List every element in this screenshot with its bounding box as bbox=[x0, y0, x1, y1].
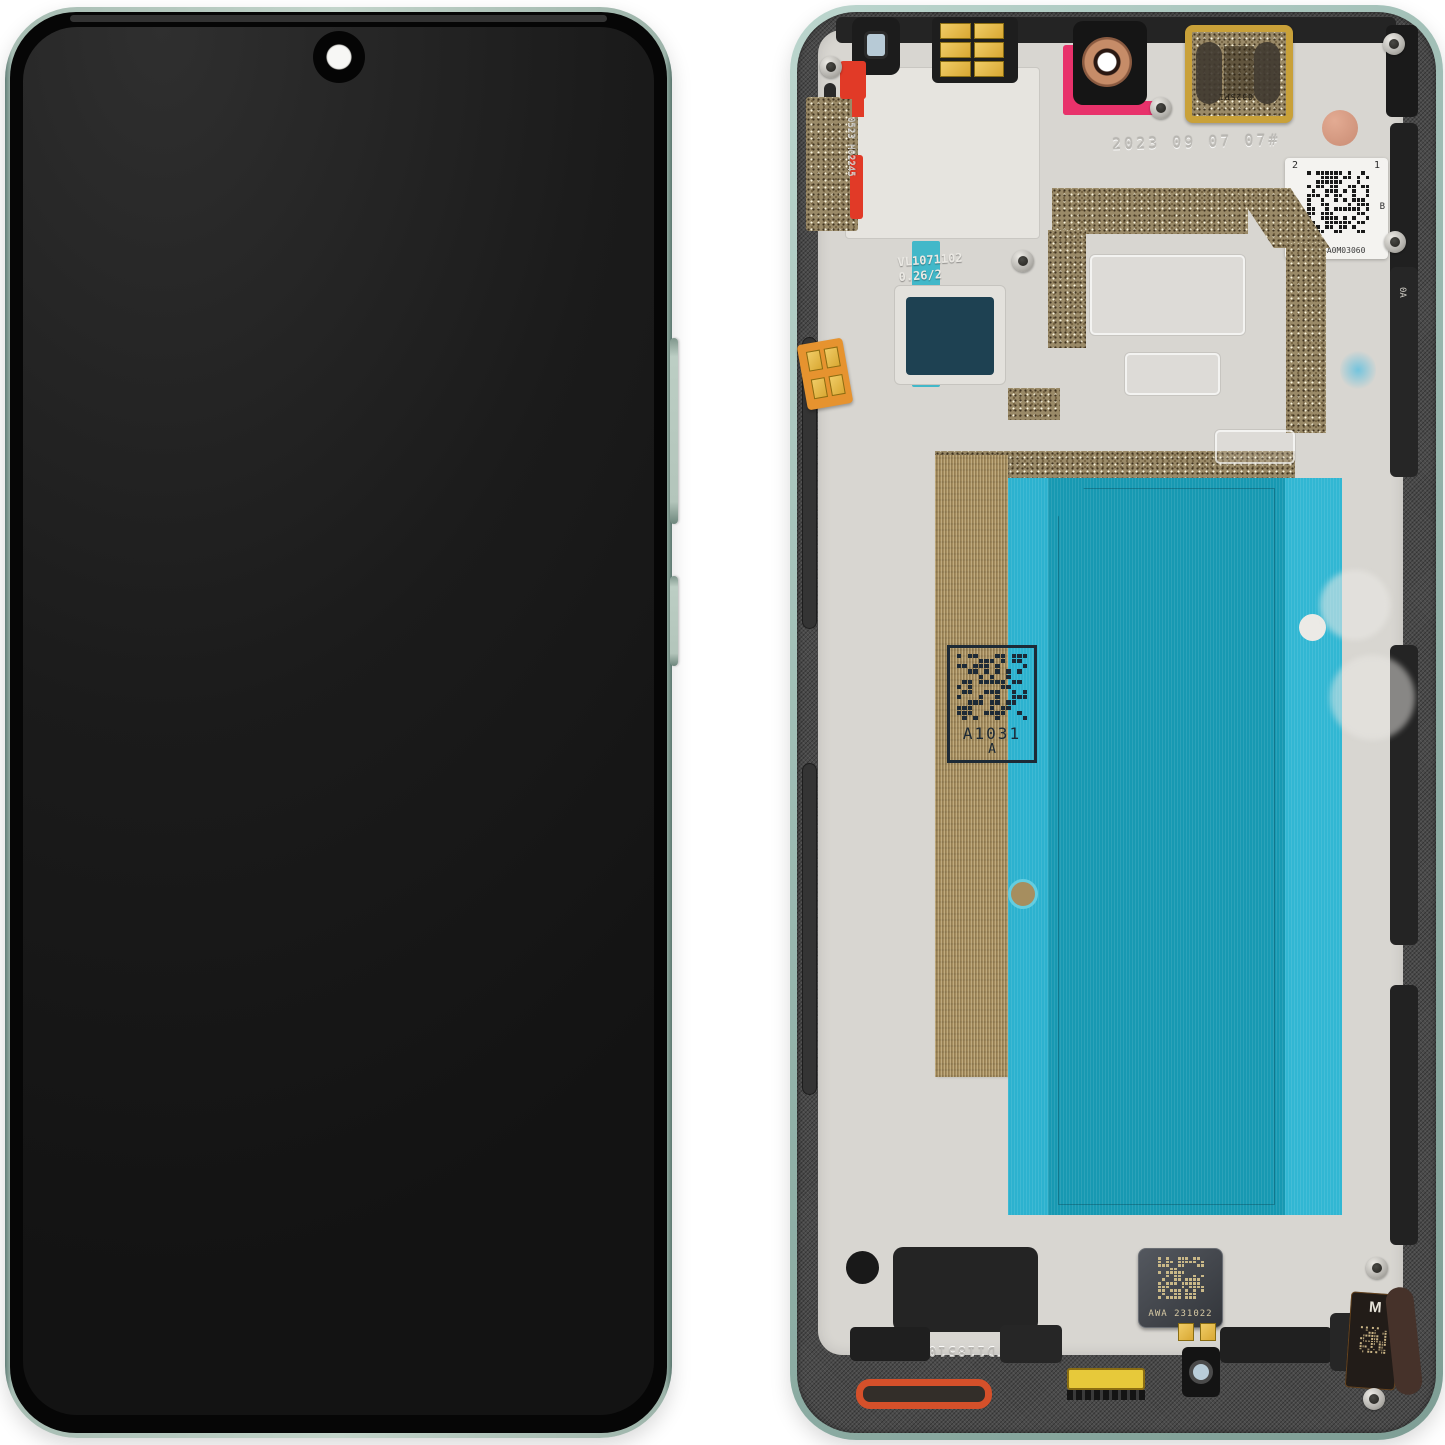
qr-cell bbox=[1170, 1271, 1173, 1274]
qr-cell bbox=[1193, 1261, 1196, 1264]
qr-cell bbox=[1321, 185, 1325, 189]
qr-cell bbox=[1385, 1336, 1387, 1338]
qr-cell bbox=[1158, 1282, 1161, 1285]
qr-cell bbox=[1357, 212, 1361, 216]
qr-cell bbox=[973, 716, 977, 720]
qr-cell bbox=[957, 711, 961, 715]
qr-cell bbox=[1193, 1257, 1196, 1260]
qr-cell bbox=[1334, 198, 1338, 202]
qr-cell bbox=[995, 654, 999, 658]
qr-cell bbox=[1357, 230, 1361, 234]
bottom-mic-hole bbox=[846, 1251, 879, 1284]
qr-cell bbox=[1325, 221, 1329, 225]
qr-cell bbox=[1307, 171, 1311, 175]
qr-cell bbox=[1384, 1339, 1386, 1341]
dark-teal-pad bbox=[906, 297, 994, 375]
qr-cell bbox=[1174, 1268, 1177, 1271]
qr-cell bbox=[1371, 1343, 1373, 1345]
qr-cell bbox=[1201, 1261, 1204, 1264]
qr-cell bbox=[1339, 207, 1343, 211]
qr-cell bbox=[1006, 685, 1010, 689]
screw-pit bbox=[1390, 237, 1400, 247]
qr-cell bbox=[1343, 176, 1347, 180]
qr-cell bbox=[1017, 659, 1021, 663]
qr-cell bbox=[1182, 1286, 1185, 1289]
shield-plate bbox=[845, 67, 1040, 239]
qr-cell bbox=[1367, 1348, 1369, 1350]
front-camera-hole bbox=[313, 31, 365, 83]
qr-cell bbox=[1373, 1341, 1375, 1343]
qr-cell bbox=[979, 659, 983, 663]
qr-cell bbox=[1363, 1334, 1365, 1336]
qr-cell bbox=[1312, 194, 1316, 198]
adhesive-sheet-main bbox=[1048, 478, 1285, 1215]
emi-mesh-run-left-drop bbox=[1048, 230, 1086, 348]
qr-cell bbox=[968, 654, 972, 658]
screw bbox=[1366, 1257, 1388, 1279]
qr-cell bbox=[1316, 180, 1320, 184]
qr-cell bbox=[1330, 225, 1334, 229]
qr-cell bbox=[957, 654, 961, 658]
qr-cell bbox=[979, 675, 983, 679]
qr-cell bbox=[1352, 207, 1356, 211]
motor-qr-code bbox=[1158, 1257, 1204, 1299]
qr-cell bbox=[973, 654, 977, 658]
qr-cell bbox=[1158, 1296, 1161, 1299]
screw bbox=[820, 56, 842, 78]
qr-cell bbox=[1017, 711, 1021, 715]
qr-cell bbox=[1321, 176, 1325, 180]
light-reflection-spot bbox=[1330, 655, 1415, 740]
qr-cell bbox=[984, 680, 988, 684]
qr-cell bbox=[1330, 176, 1334, 180]
qr-cell bbox=[968, 669, 972, 673]
qr-cell bbox=[1366, 189, 1370, 193]
bottom-foam-pad bbox=[893, 1247, 1038, 1332]
qr-cell bbox=[1343, 225, 1347, 229]
flex-gold-pad bbox=[806, 350, 823, 372]
qr-cell bbox=[1178, 1261, 1181, 1264]
earpiece-mesh-pad-right bbox=[1254, 42, 1280, 104]
qr-cell bbox=[1166, 1275, 1169, 1278]
qr-cell bbox=[1174, 1293, 1177, 1296]
qr-cell bbox=[1321, 230, 1325, 234]
qr-cell bbox=[1307, 198, 1311, 202]
qr-cell bbox=[1312, 189, 1316, 193]
qr-cell bbox=[1023, 654, 1027, 658]
qr-cell bbox=[1193, 1293, 1196, 1296]
qr-cell bbox=[1178, 1293, 1181, 1296]
qr-cell bbox=[995, 690, 999, 694]
qr-cell bbox=[1023, 690, 1027, 694]
right-rail-bracket-mid: 0A bbox=[1390, 267, 1418, 477]
mid-qr-label: A1031 A bbox=[947, 645, 1037, 763]
qr-cell bbox=[995, 664, 999, 668]
qr-cell bbox=[1339, 225, 1343, 229]
flex-gold-pad bbox=[824, 346, 841, 368]
qr-cell bbox=[1339, 221, 1343, 225]
qr-cell bbox=[1343, 207, 1347, 211]
qr-cell bbox=[1170, 1282, 1173, 1285]
qr-cell bbox=[979, 680, 983, 684]
screw bbox=[1012, 250, 1034, 272]
qr-cell bbox=[1193, 1275, 1196, 1278]
qr-cell bbox=[1170, 1289, 1173, 1292]
adhesive-sheet-left-strip bbox=[1008, 478, 1048, 1215]
qr-cell bbox=[973, 669, 977, 673]
qr-cell bbox=[1197, 1278, 1200, 1281]
qr-cell bbox=[1325, 189, 1329, 193]
qr-cell bbox=[1334, 180, 1338, 184]
qr-cell bbox=[1384, 1344, 1386, 1346]
qr-cell bbox=[1334, 194, 1338, 198]
side-key-slot-lower bbox=[802, 763, 817, 1095]
emi-mesh-tab bbox=[1008, 388, 1060, 420]
qr-cell bbox=[1366, 176, 1370, 180]
qr-cell bbox=[1012, 700, 1016, 704]
qr-cell bbox=[1182, 1257, 1185, 1260]
screw-pit bbox=[1018, 256, 1028, 266]
qr-cell bbox=[1185, 1257, 1188, 1260]
earpiece-code-text: 032SP1 bbox=[1218, 92, 1253, 101]
qr-cell bbox=[1189, 1286, 1192, 1289]
qr-cell bbox=[1357, 207, 1361, 211]
motor-contact bbox=[1178, 1323, 1194, 1341]
qr-cell bbox=[990, 690, 994, 694]
qr-cell bbox=[1334, 216, 1338, 220]
screw-pit bbox=[1369, 1394, 1379, 1404]
qr-cell bbox=[1189, 1296, 1192, 1299]
qr-cell bbox=[1334, 221, 1338, 225]
qr-cell bbox=[995, 680, 999, 684]
qr-cell bbox=[1330, 221, 1334, 225]
proximity-sensor-window bbox=[864, 31, 888, 59]
qr-cell bbox=[1158, 1271, 1161, 1274]
qr-cell bbox=[1366, 216, 1370, 220]
qr-cell bbox=[1312, 212, 1316, 216]
qr-cell bbox=[1316, 185, 1320, 189]
qr-cell bbox=[984, 711, 988, 715]
qr-cell bbox=[1334, 171, 1338, 175]
qr-cell bbox=[1378, 1346, 1380, 1348]
mid-label-code: A1031 bbox=[950, 724, 1034, 743]
qr-cell bbox=[1012, 690, 1016, 694]
lcd-flex-connector bbox=[1067, 1368, 1145, 1390]
qr-cell bbox=[1325, 171, 1329, 175]
qr-cell bbox=[1307, 203, 1311, 207]
qr-cell bbox=[1193, 1286, 1196, 1289]
qr-cell bbox=[1321, 198, 1325, 202]
qr-cell bbox=[1321, 216, 1325, 220]
qr-cell bbox=[1381, 1349, 1383, 1351]
qr-cell bbox=[1197, 1264, 1200, 1267]
qr-cell bbox=[990, 680, 994, 684]
qr-cell bbox=[995, 716, 999, 720]
datamatrix-qr bbox=[1307, 171, 1369, 233]
qr-cell bbox=[1197, 1282, 1200, 1285]
flex-gold-pad bbox=[828, 374, 845, 396]
qr-cell bbox=[968, 706, 972, 710]
qr-cell bbox=[1170, 1268, 1173, 1271]
qr-cell bbox=[1166, 1271, 1169, 1274]
qr-cell bbox=[1363, 1340, 1365, 1342]
qr-cell bbox=[1366, 1335, 1368, 1337]
qr-cell bbox=[1158, 1264, 1161, 1267]
qr-cell bbox=[1334, 207, 1338, 211]
qr-cell bbox=[1361, 212, 1365, 216]
qr-cell bbox=[1189, 1278, 1192, 1281]
qr-cell bbox=[1321, 203, 1325, 207]
qr-cell bbox=[1360, 1342, 1362, 1344]
emi-mesh-run-right bbox=[1286, 243, 1326, 433]
qr-cell bbox=[1189, 1261, 1192, 1264]
coral-foam-dot bbox=[1322, 110, 1358, 146]
qr-cell bbox=[1382, 1333, 1384, 1335]
qr-cell bbox=[1006, 700, 1010, 704]
qr-cell bbox=[1166, 1282, 1169, 1285]
qr-cell bbox=[1381, 1344, 1383, 1346]
qr-cell bbox=[962, 690, 966, 694]
qr-cell bbox=[1366, 203, 1370, 207]
graphite-film-strip bbox=[935, 455, 1008, 1077]
bottom-plastic-chunk bbox=[850, 1327, 930, 1361]
screw bbox=[1383, 33, 1405, 55]
qr-cell bbox=[1174, 1296, 1177, 1299]
qr-cell bbox=[1339, 230, 1343, 234]
qr-cell bbox=[1166, 1296, 1169, 1299]
qr-cell bbox=[1178, 1271, 1181, 1274]
qr-cell bbox=[968, 690, 972, 694]
qr-cell bbox=[1178, 1278, 1181, 1281]
qr-cell bbox=[1371, 1335, 1373, 1337]
qr-cell bbox=[1197, 1257, 1200, 1260]
qr-cell bbox=[1162, 1286, 1165, 1289]
qr-cell bbox=[1185, 1282, 1188, 1285]
qr-cell bbox=[1158, 1261, 1161, 1264]
qr-cell bbox=[1373, 1349, 1375, 1351]
qr-cell bbox=[1330, 216, 1334, 220]
screw-pit bbox=[1156, 103, 1166, 113]
qr-cell bbox=[1371, 1332, 1373, 1334]
qr-cell bbox=[1201, 1289, 1204, 1292]
qr-cell bbox=[1379, 1344, 1381, 1346]
qr-cell bbox=[1370, 1351, 1372, 1353]
qr-cell bbox=[1162, 1293, 1165, 1296]
qr-cell bbox=[1375, 1351, 1377, 1353]
qr-cell bbox=[1001, 706, 1005, 710]
battery-contact-pads bbox=[940, 23, 1004, 77]
m-flex-qr-code bbox=[1359, 1326, 1387, 1354]
qr-cell bbox=[1166, 1261, 1169, 1264]
qr-cell bbox=[1001, 659, 1005, 663]
qr-cell bbox=[1017, 695, 1021, 699]
qr-cell bbox=[1182, 1282, 1185, 1285]
qr-cell bbox=[1001, 685, 1005, 689]
qr-cell bbox=[1197, 1286, 1200, 1289]
qr-cell bbox=[1325, 207, 1329, 211]
qr-cell bbox=[1166, 1286, 1169, 1289]
qr-cell bbox=[1193, 1289, 1196, 1292]
qr-cell bbox=[1325, 216, 1329, 220]
speaker-gasket bbox=[856, 1379, 992, 1409]
qr-cell bbox=[1178, 1257, 1181, 1260]
screw bbox=[1384, 231, 1406, 253]
qr-cell bbox=[1321, 180, 1325, 184]
qr-cell bbox=[1325, 180, 1329, 184]
qr-cell bbox=[1348, 207, 1352, 211]
qr-cell bbox=[1348, 176, 1352, 180]
qr-cell bbox=[1352, 198, 1356, 202]
qr-cell bbox=[1307, 207, 1311, 211]
emi-mesh-run-top bbox=[1052, 188, 1248, 234]
qr-cell bbox=[1374, 1332, 1376, 1334]
gold-pad bbox=[940, 61, 971, 77]
qr-cell bbox=[1339, 171, 1343, 175]
qr-cell bbox=[1374, 1338, 1376, 1340]
qr-cell bbox=[1182, 1264, 1185, 1267]
qr-cell bbox=[1374, 1330, 1376, 1332]
qr-cell bbox=[1381, 1346, 1383, 1348]
flex-gold-pad bbox=[811, 377, 828, 399]
qr-cell bbox=[1001, 654, 1005, 658]
qr-cell bbox=[1360, 1345, 1362, 1347]
gold-pad bbox=[940, 42, 971, 58]
right-rail-bracket-top bbox=[1390, 123, 1418, 283]
qr-cell bbox=[1383, 1352, 1385, 1354]
qr-cell bbox=[1343, 198, 1347, 202]
qr-cell bbox=[979, 695, 983, 699]
qr-cell bbox=[1185, 1278, 1188, 1281]
connector-teeth bbox=[1067, 1390, 1145, 1400]
qr-cell bbox=[1307, 185, 1311, 189]
qr-cell bbox=[1174, 1289, 1177, 1292]
bottom-plastic-chunk bbox=[1220, 1327, 1332, 1363]
qr-cell bbox=[1330, 212, 1334, 216]
chassis-emboss-rect bbox=[1215, 430, 1295, 464]
qr-cell bbox=[995, 669, 999, 673]
qr-cell bbox=[957, 706, 961, 710]
qr-cell bbox=[1360, 1337, 1362, 1339]
qr-cell bbox=[1006, 706, 1010, 710]
qr-cell bbox=[1189, 1282, 1192, 1285]
screw-pit bbox=[1389, 39, 1399, 49]
qr-cell bbox=[1334, 189, 1338, 193]
screw-pit bbox=[1372, 1263, 1382, 1273]
corner-code-stamp: 0523 H02245 bbox=[846, 117, 856, 217]
qr-cell bbox=[984, 690, 988, 694]
label-corner-1: 1 bbox=[1374, 160, 1380, 171]
qr-cell bbox=[990, 659, 994, 663]
qr-cell bbox=[1352, 185, 1356, 189]
qr-cell bbox=[1361, 171, 1365, 175]
qr-cell bbox=[1325, 176, 1329, 180]
qr-cell bbox=[1348, 171, 1352, 175]
qr-cell bbox=[1376, 1341, 1378, 1343]
qr-cell bbox=[1366, 1327, 1368, 1329]
light-reflection-spot bbox=[1320, 570, 1390, 640]
qr-cell bbox=[1162, 1289, 1165, 1292]
qr-cell bbox=[1012, 680, 1016, 684]
bottom-mic-block bbox=[1182, 1347, 1220, 1397]
vibration-motor-module: AWA 231022 bbox=[1138, 1248, 1223, 1328]
qr-cell bbox=[1352, 225, 1356, 229]
qr-cell bbox=[1201, 1286, 1204, 1289]
qr-cell bbox=[1330, 185, 1334, 189]
gold-pad bbox=[974, 42, 1005, 58]
qr-cell bbox=[1001, 711, 1005, 715]
qr-cell bbox=[1178, 1275, 1181, 1278]
qr-cell bbox=[1330, 189, 1334, 193]
qr-cell bbox=[1185, 1261, 1188, 1264]
power-button bbox=[670, 576, 678, 666]
qr-cell bbox=[1185, 1289, 1188, 1292]
front-camera-barrel bbox=[1082, 37, 1132, 87]
motor-code-text: AWA 231022 bbox=[1139, 1309, 1222, 1319]
qr-cell bbox=[995, 700, 999, 704]
qr-cell bbox=[995, 695, 999, 699]
qr-cell bbox=[1325, 212, 1329, 216]
product-photo-lcd-assembly: 0A 032SP1 bbox=[0, 0, 1445, 1445]
qr-cell bbox=[1385, 1333, 1387, 1335]
qr-cell bbox=[1376, 1338, 1378, 1340]
adhesive-hole-dot bbox=[1008, 879, 1038, 909]
qr-cell bbox=[1012, 659, 1016, 663]
qr-cell bbox=[1158, 1289, 1161, 1292]
qr-cell bbox=[1366, 207, 1370, 211]
qr-cell bbox=[1174, 1282, 1177, 1285]
qr-cell bbox=[979, 664, 983, 668]
qr-cell bbox=[968, 700, 972, 704]
qr-cell bbox=[1170, 1296, 1173, 1299]
qr-cell bbox=[1312, 207, 1316, 211]
blue-ink-stamp bbox=[1340, 349, 1376, 391]
qr-cell bbox=[1017, 680, 1021, 684]
qr-cell bbox=[979, 700, 983, 704]
qr-cell bbox=[984, 659, 988, 663]
qr-cell bbox=[1357, 198, 1361, 202]
qr-cell bbox=[973, 664, 977, 668]
gold-pad bbox=[940, 23, 971, 39]
qr-cell bbox=[1361, 198, 1365, 202]
qr-cell bbox=[1359, 1348, 1361, 1350]
qr-cell bbox=[1330, 180, 1334, 184]
earpiece-speaker: 032SP1 bbox=[1185, 25, 1293, 123]
qr-cell bbox=[1366, 185, 1370, 189]
qr-cell bbox=[1352, 216, 1356, 220]
qr-cell bbox=[1158, 1286, 1161, 1289]
qr-cell bbox=[1330, 171, 1334, 175]
qr-cell bbox=[1376, 1335, 1378, 1337]
qr-cell bbox=[1377, 1327, 1379, 1329]
qr-cell bbox=[1339, 194, 1343, 198]
qr-cell bbox=[1384, 1349, 1386, 1351]
qr-cell bbox=[1334, 185, 1338, 189]
qr-cell bbox=[984, 664, 988, 668]
qr-cell bbox=[1384, 1341, 1386, 1343]
bottom-plastic-chunk bbox=[1000, 1325, 1062, 1363]
qr-cell bbox=[1348, 203, 1352, 207]
qr-cell bbox=[1334, 176, 1338, 180]
qr-cell bbox=[1012, 695, 1016, 699]
qr-cell bbox=[1365, 1340, 1367, 1342]
qr-cell bbox=[1379, 1341, 1381, 1343]
label-side-b: B bbox=[1380, 202, 1385, 212]
back-display-assembly: 0A 032SP1 bbox=[790, 5, 1443, 1440]
qr-cell bbox=[1201, 1264, 1204, 1267]
qr-cell bbox=[1185, 1296, 1188, 1299]
front-display-assembly bbox=[5, 7, 672, 1438]
qr-cell bbox=[1193, 1296, 1196, 1299]
